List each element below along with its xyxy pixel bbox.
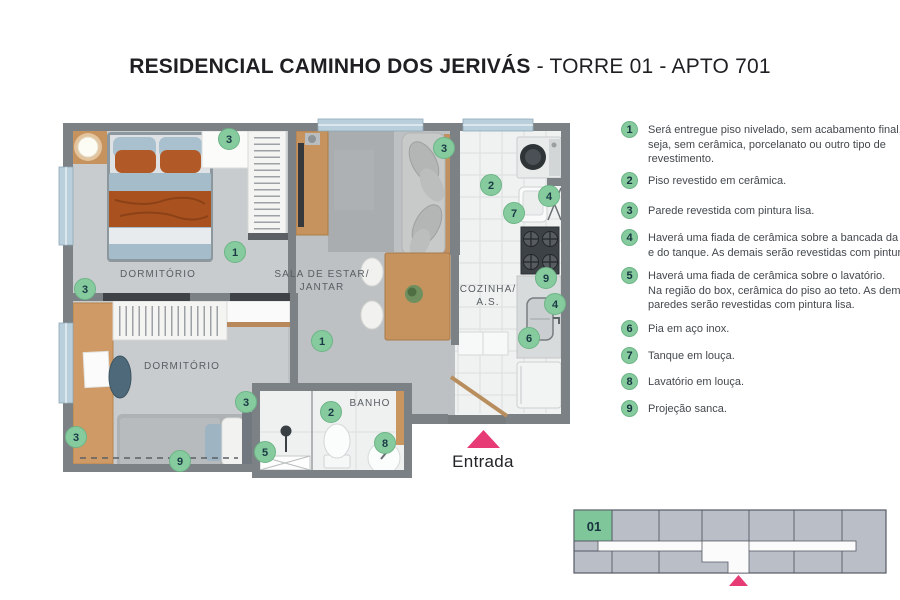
rug-texture bbox=[334, 150, 374, 210]
plan-marker-number: 5 bbox=[262, 447, 268, 459]
bedroom1-label: DORMITÓRIO bbox=[120, 267, 196, 280]
plan-marker-number: 4 bbox=[546, 191, 553, 203]
wardrobe bbox=[248, 131, 290, 240]
entrance-triangle-icon bbox=[467, 430, 500, 448]
plan-marker-number: 9 bbox=[177, 456, 183, 468]
tv-console bbox=[296, 131, 328, 235]
bedroom2-label: DORMITÓRIO bbox=[144, 359, 220, 372]
plan-marker-number: 1 bbox=[319, 336, 325, 348]
page-title-regular: - TORRE 01 - APTO 701 bbox=[531, 55, 771, 78]
plan-marker-number: 3 bbox=[243, 397, 249, 409]
toilet-icon bbox=[324, 424, 350, 468]
plan-marker-number: 6 bbox=[526, 333, 532, 345]
double-bed bbox=[107, 132, 213, 262]
bedroom-door-leaf bbox=[230, 293, 290, 301]
kitchen-label-line2: A.S. bbox=[476, 297, 499, 308]
washing-machine bbox=[517, 137, 561, 178]
living-label-line2: JANTAR bbox=[300, 282, 345, 293]
bedroom-door-leaf bbox=[103, 293, 190, 301]
plan-marker-number: 7 bbox=[511, 208, 517, 220]
bath-label: BANHO bbox=[349, 398, 390, 409]
plan-marker-number: 8 bbox=[382, 438, 388, 450]
plan-marker-number: 1 bbox=[232, 247, 238, 259]
living-label-line1: SALA DE ESTAR/ bbox=[274, 269, 369, 280]
lamp-icon bbox=[78, 137, 98, 157]
plan-marker-number: 3 bbox=[441, 143, 447, 155]
plan-marker-number: 4 bbox=[552, 299, 559, 311]
keyplan-minimap: 01 bbox=[574, 510, 886, 586]
minimap-entrance-triangle-icon bbox=[729, 575, 748, 586]
plan-marker-number: 2 bbox=[328, 407, 334, 419]
shelf bbox=[227, 301, 290, 327]
plan-marker-number: 3 bbox=[82, 284, 88, 296]
closet bbox=[113, 301, 227, 340]
desk-chair bbox=[109, 356, 131, 398]
stove bbox=[521, 227, 559, 274]
floor-plan-graphic: DORMITÓRIO SALA DE ESTAR/ JANTAR COZINHA… bbox=[0, 0, 900, 600]
entrance-marker: Entrada bbox=[452, 430, 514, 471]
kitchen-label-line1: COZINHA/ bbox=[460, 284, 517, 295]
bathroom-door bbox=[396, 391, 404, 445]
floorplan-page: { "header": { "title_bold": "RESIDENCIAL… bbox=[0, 0, 900, 600]
doormat bbox=[448, 415, 506, 424]
page-title: RESIDENCIAL CAMINHO DOS JERIVÁS - TORRE … bbox=[0, 55, 900, 79]
plan-marker-number: 3 bbox=[226, 134, 232, 146]
plan-marker-number: 9 bbox=[543, 273, 549, 285]
plan-marker-number: 2 bbox=[488, 180, 494, 192]
fridge bbox=[517, 362, 561, 408]
page-title-bold: RESIDENCIAL CAMINHO DOS JERIVÁS bbox=[129, 55, 530, 78]
minimap-unit-label: 01 bbox=[587, 519, 601, 534]
desk-paper bbox=[83, 351, 110, 387]
entrance-label: Entrada bbox=[452, 452, 514, 471]
plan-marker-number: 3 bbox=[73, 432, 79, 444]
